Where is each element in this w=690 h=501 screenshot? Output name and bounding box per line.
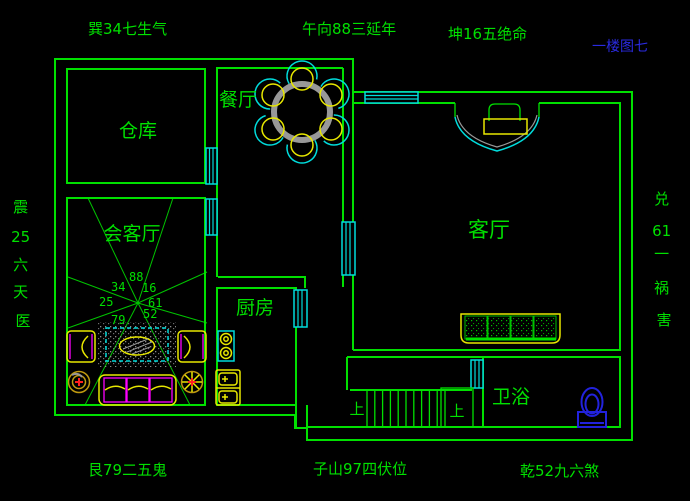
living-room-west-window <box>342 222 355 275</box>
reception-armchair-right <box>178 331 206 362</box>
compass-bottom-left-label: 艮79二五鬼 <box>88 461 167 479</box>
living-room-label: 客厅 <box>468 218 510 242</box>
fengshui-number: 52 <box>143 307 157 321</box>
living-room-top-window <box>365 92 418 103</box>
plant-pot-right <box>182 372 203 393</box>
stair-up-left-label: 上 <box>349 400 364 418</box>
compass-left-column: 震 25 六 天 医 <box>11 198 35 330</box>
compass-top-right-label: 坤16五绝命 <box>448 25 527 43</box>
dining-table-set <box>249 56 354 169</box>
fengshui-number: 79 <box>111 313 125 327</box>
reception-east-window <box>206 199 217 235</box>
bathroom-label: 卫浴 <box>492 386 530 408</box>
reception-rug <box>98 322 176 367</box>
fengshui-number: 25 <box>99 295 113 309</box>
fengshui-number-labels: 88 34 16 25 61 52 79 <box>99 270 162 327</box>
fengshui-number: 16 <box>142 281 156 295</box>
compass-right-column: 兑 61 一 祸 害 <box>652 190 676 329</box>
compass-bottom-center-label: 子山97四伏位 <box>313 460 407 478</box>
warehouse-east-window <box>206 148 217 184</box>
drawing-title: 一楼图七 <box>592 39 648 55</box>
kitchen-stove <box>218 331 234 361</box>
kitchen-east-window <box>294 290 307 327</box>
floorplan-canvas: 巽34七生气 午向88三延年 坤16五绝命 艮79二五鬼 子山97四伏位 乾52… <box>0 0 690 501</box>
reception-sofa <box>99 375 176 405</box>
reception-armchair-left <box>67 331 95 362</box>
floorplan-drawing: 巽34七生气 午向88三延年 坤16五绝命 艮79二五鬼 子山97四伏位 乾52… <box>0 0 690 501</box>
compass-top-left-label: 巽34七生气 <box>88 20 167 38</box>
compass-top-center-label: 午向88三延年 <box>302 20 396 38</box>
warehouse-label: 仓库 <box>119 120 157 142</box>
fengshui-number: 34 <box>111 280 125 294</box>
kitchen-sink <box>216 370 240 405</box>
stair-up-right-label: 上 <box>449 402 464 420</box>
reception-label: 会客厅 <box>103 223 160 245</box>
plant-pot-left <box>69 372 90 393</box>
dining-label: 餐厅 <box>219 89 257 111</box>
compass-bottom-right-label: 乾52九六煞 <box>520 462 599 480</box>
bathroom-west-window <box>471 360 483 388</box>
toilet <box>578 388 606 427</box>
tv-cabinet <box>455 103 539 151</box>
kitchen-label: 厨房 <box>236 297 274 319</box>
living-room-sofa <box>461 314 560 343</box>
